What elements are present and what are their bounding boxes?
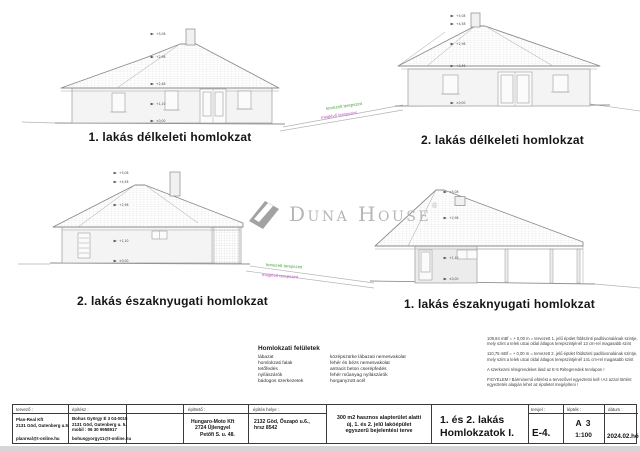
chimney <box>471 13 480 27</box>
roof <box>53 185 243 230</box>
svg-text:±0,00: ±0,00 <box>456 101 466 105</box>
note: 109,84 mBf = + 0,00 m = tervezett 1. jel… <box>487 336 638 347</box>
svg-text:±0,00: ±0,00 <box>449 277 459 281</box>
svg-text:+5,08: +5,08 <box>119 171 129 175</box>
registered-mark: ® <box>431 202 441 210</box>
caption-house2-southeast: 2. lakás délkeleti homlokzat <box>395 133 610 147</box>
elevation-drawing-house2-southeast: +5,08 +4,58 +2,98 +2,48 ±0,00 <box>395 8 610 120</box>
facade-surfaces-legend: Homlokzati felületek lábazat középszürke… <box>258 345 406 386</box>
legend-title: Homlokzati felületek <box>258 345 406 352</box>
designer-email: planreal@t-online.hu <box>16 436 60 442</box>
svg-text:±0,00: ±0,00 <box>156 119 166 123</box>
designer-header: tervező : <box>16 407 33 412</box>
svg-text:+4,58: +4,58 <box>119 180 129 184</box>
roof <box>61 44 279 91</box>
site-header: építés helye : <box>253 407 279 412</box>
svg-text:+2,48: +2,48 <box>156 82 166 86</box>
chimney <box>186 29 195 45</box>
drawing-title: 1. és 2. lakás Homlokzatok I. <box>440 414 526 440</box>
caption-house1-northwest: 1. lakás északnyugati homlokzat <box>392 297 607 311</box>
architect-header: építész : <box>72 407 89 412</box>
svg-text:±0,00: ±0,00 <box>119 259 129 263</box>
ground-line <box>370 281 595 284</box>
duna-house-logo-icon <box>246 198 282 230</box>
elevation-drawing-house1-southeast: +5,08 +2,98 +2,48 +1,10 ±0,00 <box>55 14 285 130</box>
drawing-code: E-4. <box>532 428 550 439</box>
note: A szerkezeti rétegrendeket lásd az E-5 R… <box>487 367 638 372</box>
note: FIGYELEM ! Bárminemű eltérést a tervezőv… <box>487 377 638 388</box>
svg-text:+2,98: +2,98 <box>456 42 466 46</box>
architect-info: Bohus György É 3 04-0018 2131 Göd, Guten… <box>72 416 127 433</box>
level-notes: 109,84 mBf = + 0,00 m = tervezett 1. jel… <box>487 336 638 392</box>
paper-size: A 3 <box>563 418 604 428</box>
client-header: építtető : <box>188 407 205 412</box>
scale-header: lépték : <box>567 407 581 412</box>
svg-text:+2,98: +2,98 <box>119 203 129 207</box>
svg-text:+5,08: +5,08 <box>456 14 466 18</box>
client-info: Hungaro-Moto Kft 2724 Újlengyel Petőfi S… <box>191 419 235 438</box>
drawing-sheet: +5,08 +2,98 +2,48 +1,10 ±0,00 <box>0 0 640 451</box>
svg-text:+2,98: +2,98 <box>156 55 166 59</box>
drawing-scale: 1:100 <box>563 432 604 439</box>
note: 110,75 mBf = + 0,00 m = tervezett 2. jel… <box>487 351 638 362</box>
title-block: tervező : építész : építtető : építés he… <box>12 404 637 444</box>
caption-house2-northwest: 2. lakás északnyugati homlokzat <box>55 294 290 308</box>
watermark-text: Duna House® <box>289 202 441 226</box>
page-edge-shadow <box>0 446 640 451</box>
drawing-code-header: tervjel : <box>531 407 545 412</box>
svg-text:+1,10: +1,10 <box>119 239 129 243</box>
roof <box>398 26 600 69</box>
chimney <box>455 197 465 206</box>
svg-text:+4,58: +4,58 <box>456 22 466 26</box>
svg-text:+1,10: +1,10 <box>449 256 459 260</box>
legend-row: bádogos szerkezetek horganyzott acél <box>258 379 406 385</box>
site-info: 2132 Göd, Őszapó u.6., hrsz 8542 <box>254 419 310 432</box>
project-description: 300 m2 hasznos alapterület alatti új, 1.… <box>329 415 429 435</box>
svg-text:+5,08: +5,08 <box>156 32 166 36</box>
svg-text:+1,10: +1,10 <box>156 102 166 106</box>
svg-text:+2,98: +2,98 <box>449 216 459 220</box>
designer-info: Plan-Real Kft 2131 Göd, Gutenberg u.5. <box>16 417 69 428</box>
date-header: dátum : <box>608 407 623 412</box>
pergola-trellis <box>212 227 241 263</box>
svg-text:+2,48: +2,48 <box>456 64 466 68</box>
duna-house-watermark: Duna House® <box>246 198 441 230</box>
elevation-drawing-house1-northwest: +5,08 +2,98 +1,10 ±0,00 <box>370 178 595 290</box>
svg-text:+5,08: +5,08 <box>449 190 459 194</box>
caption-house1-southeast: 1. lakás délkeleti homlokzat <box>60 130 280 144</box>
architect-email: bohusgyorgy11@t-online.hu <box>72 436 131 442</box>
open-wing-posts <box>477 246 583 283</box>
chimney <box>170 172 180 196</box>
drawing-date: 2024.02.hó <box>607 433 639 440</box>
